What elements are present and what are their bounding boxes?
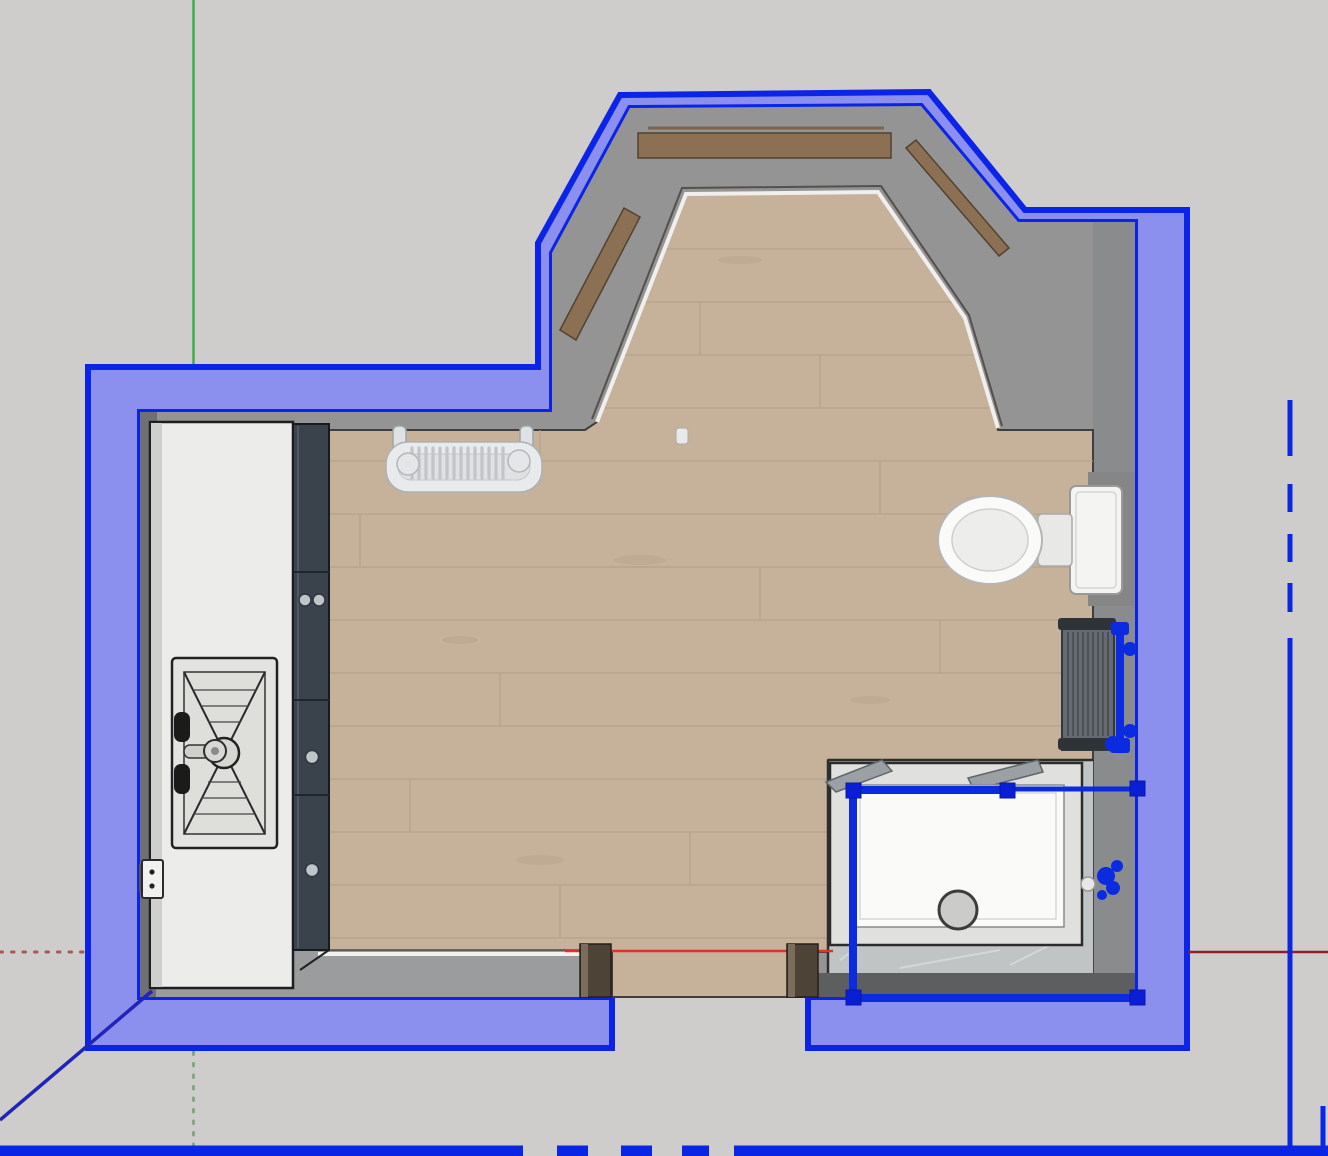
jamb-highlight (788, 944, 795, 997)
radiator-top-bar (1058, 618, 1116, 630)
radiator-fins (1068, 632, 1108, 736)
counter-edge-shade (151, 423, 162, 987)
socket-hole (149, 869, 154, 874)
shower-valve-base (1081, 877, 1095, 891)
shower-drain (939, 891, 977, 929)
sink[interactable] (172, 658, 277, 848)
toilet-cistern[interactable] (1070, 486, 1122, 594)
door-jamb-left[interactable] (580, 944, 611, 997)
rail-end (508, 450, 530, 472)
toilet-lid-inner (952, 509, 1028, 571)
power-socket[interactable] (139, 860, 163, 898)
rail-end (397, 453, 419, 475)
wall-bracket (676, 428, 688, 444)
tall-cabinet[interactable] (293, 424, 329, 970)
door-jamb-right[interactable] (787, 944, 818, 997)
toilet-seat-hinge (1038, 514, 1072, 566)
window-sill-top[interactable] (638, 133, 891, 158)
socket-hole (149, 883, 154, 888)
jamb-highlight (581, 944, 588, 997)
3d-viewport[interactable] (0, 0, 1328, 1156)
